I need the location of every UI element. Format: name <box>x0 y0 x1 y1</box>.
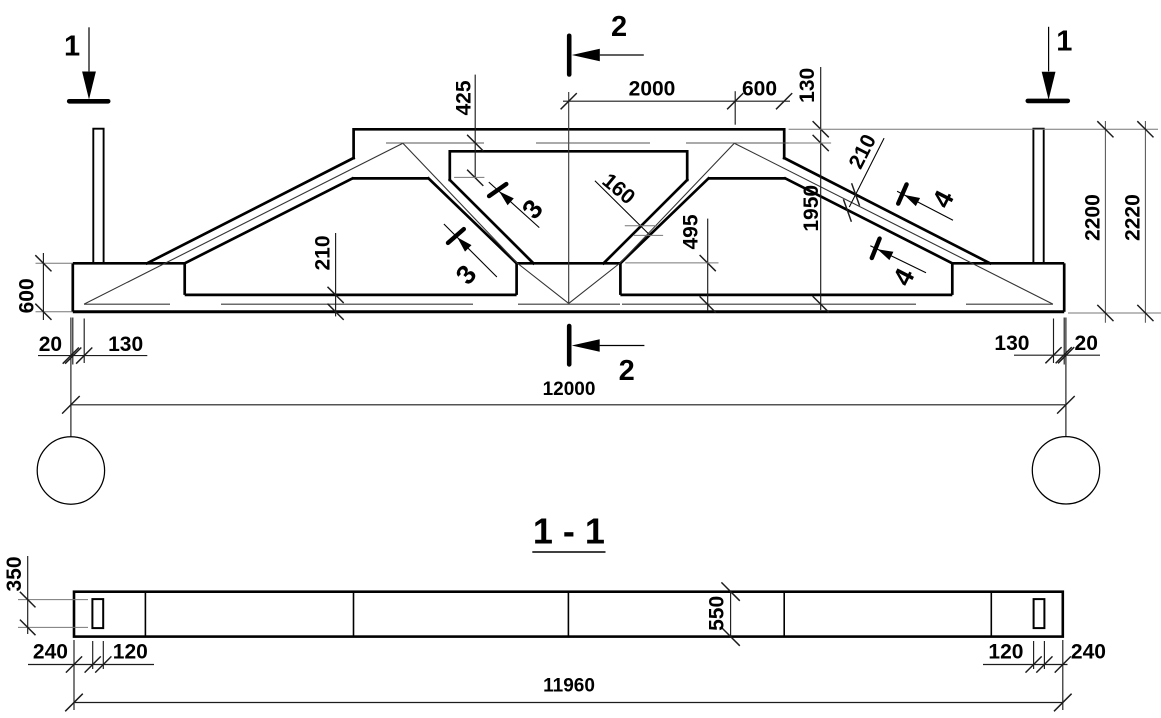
svg-text:130: 130 <box>108 333 143 356</box>
svg-text:1 - 1: 1 - 1 <box>533 511 605 552</box>
svg-text:120: 120 <box>988 641 1023 664</box>
svg-text:130: 130 <box>796 68 819 103</box>
svg-text:2: 2 <box>611 11 627 43</box>
svg-text:2200: 2200 <box>1082 194 1105 241</box>
svg-text:1: 1 <box>64 30 80 62</box>
svg-text:1950: 1950 <box>800 185 823 232</box>
svg-text:12000: 12000 <box>543 379 596 400</box>
svg-text:20: 20 <box>1075 332 1098 355</box>
svg-text:600: 600 <box>742 78 777 101</box>
svg-text:425: 425 <box>452 80 475 115</box>
svg-text:20: 20 <box>39 333 62 356</box>
svg-text:550: 550 <box>706 596 729 631</box>
svg-text:11960: 11960 <box>543 676 595 697</box>
svg-text:495: 495 <box>679 214 702 249</box>
svg-text:240: 240 <box>1071 641 1106 664</box>
svg-text:1: 1 <box>1056 26 1072 58</box>
svg-text:210: 210 <box>311 235 334 270</box>
svg-text:600: 600 <box>15 278 38 313</box>
svg-text:130: 130 <box>994 332 1029 355</box>
svg-text:120: 120 <box>113 641 148 664</box>
svg-text:240: 240 <box>33 641 68 664</box>
svg-text:2000: 2000 <box>629 78 676 101</box>
svg-text:2: 2 <box>619 355 635 387</box>
svg-text:2220: 2220 <box>1122 194 1145 241</box>
svg-text:350: 350 <box>3 556 26 591</box>
